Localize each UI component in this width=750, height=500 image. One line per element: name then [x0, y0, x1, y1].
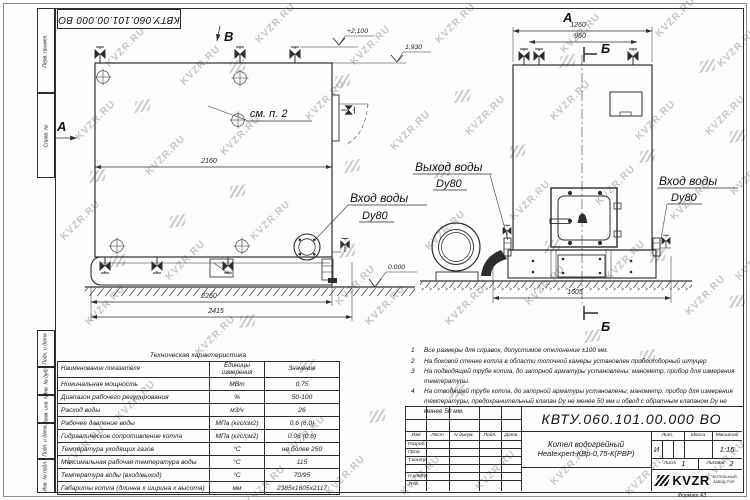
note-text: На подводящей трубе котла, до запорной а… [424, 367, 742, 386]
dim-1605: 1605 [567, 289, 583, 296]
tb-col-data: Дата [501, 431, 521, 440]
tb-line [406, 464, 521, 465]
table-row: Максимальная рабочая температура воды°С1… [58, 456, 340, 469]
position-mark-icon [234, 238, 251, 255]
elevation-zero: 0.000 [388, 264, 405, 271]
base-bolt [599, 272, 602, 275]
product-name-line1: Котел водогрейный [548, 440, 624, 449]
tb-logo-cell: KVZR КОТЕЛЬНЫЙ ЗАВОД РЭП [651, 469, 742, 491]
row-name: Расход воды [58, 404, 210, 417]
tb-line [662, 440, 663, 458]
tb-col-izm: Изм [406, 431, 426, 440]
valve-icon [534, 49, 545, 65]
base-bolt [532, 260, 535, 263]
view-a-marker: А [56, 119, 66, 134]
kvzr-logo-text: KVZR [672, 473, 709, 488]
tb-col-ndocum: N докум. [449, 431, 479, 440]
view-a-label: А [562, 10, 572, 25]
title-block: КВТУ.060.101.00.000 ВО Изм Лист N докум.… [405, 406, 744, 493]
tech-characteristics: Техническая характеристика Наименование … [57, 352, 339, 495]
base-hatch-diagonal [214, 263, 229, 274]
valve-icon [235, 47, 246, 63]
row-name: Диапазон рабочего регулирования [58, 391, 210, 404]
door-handle-pin [568, 219, 572, 223]
position-mark-icon [232, 70, 249, 87]
tb-line [521, 467, 651, 468]
sheets-label: Листов [707, 461, 725, 466]
position-mark-icon [95, 69, 112, 86]
col-name: Наименование показателя [58, 362, 210, 378]
table-row: Температура уходящих газов°Сне более 250 [58, 443, 340, 456]
inspection-panel [610, 92, 642, 116]
elev-tick [333, 38, 339, 45]
row-value: не более 250 [265, 443, 340, 456]
fan-ring [442, 233, 471, 262]
note-item: 3На подводящей трубе котла, до запорной … [411, 367, 742, 386]
tech-table-header-row: Наименование показателя Единицы измерени… [58, 362, 340, 378]
door-bolt [568, 191, 572, 195]
row-name: Номинальная мощность [58, 378, 210, 391]
note-item: 1Все размеры для справок, допустимое отк… [411, 346, 742, 356]
elev-tick [397, 55, 403, 62]
base-bolt [630, 271, 633, 274]
drawing-sheet: KVZR.RUKVZR.RUKVZR.RUKVZR.RUKVZR.RUKVZR.… [0, 0, 750, 500]
sheet-label: Лист [664, 461, 677, 466]
elev-tick [369, 279, 375, 287]
leader-line [661, 204, 667, 239]
kvzr-logo-icon [655, 475, 672, 486]
view-b-marker: В [224, 29, 233, 44]
drain-valve-icon [152, 257, 163, 273]
drain-valve-icon [100, 257, 111, 273]
row-unit: МПа (кгс/см2) [210, 417, 265, 430]
sheet-value: 1 [681, 459, 685, 468]
inlet-front-dn: Dy80 [671, 192, 698, 204]
row-unit: °С [210, 443, 265, 456]
section-b-top-label: Б [601, 41, 610, 56]
outlet-label: Выход воды [415, 160, 483, 174]
tb-col-list: Лист [426, 431, 449, 440]
base-bolt [562, 272, 565, 275]
tb-row-utv: Утв. [408, 482, 419, 487]
tb-mass-label: Масса [684, 431, 712, 440]
row-value: 0,75 [265, 378, 340, 391]
col-unit: Единицы измерения [210, 362, 265, 378]
sheets-value: 2 [729, 459, 733, 468]
tb-line [406, 448, 521, 449]
elev-tick [391, 55, 397, 62]
dim-2415: 2415 [207, 308, 224, 315]
position-mark-icon [230, 112, 247, 129]
inlet-side-label: Вход воды [350, 191, 408, 205]
product-name-line2: Heatexpert-КВр-0,75-К(РВР) [538, 449, 635, 458]
tb-line [673, 440, 674, 458]
water-inlet-flange-icon [294, 234, 320, 260]
row-unit: % [210, 391, 265, 404]
door-sight-glass [578, 214, 588, 224]
base-bolt [599, 258, 602, 261]
row-value: 70/95 [265, 469, 340, 482]
tb-row-tkontr: Т.контр [408, 458, 426, 463]
dim-2160: 2160 [200, 158, 217, 165]
base-bolt [532, 271, 535, 274]
inlet-side-dn: Dy80 [362, 210, 389, 222]
door-handle [550, 219, 570, 224]
tb-sheet-cell: Лист 1 [651, 458, 698, 469]
valve-icon [340, 238, 349, 252]
panel-latch [620, 112, 631, 116]
valve-icon [290, 47, 301, 63]
tech-table: Наименование показателя Единицы измерени… [57, 361, 340, 495]
side-view: см. п. 2 2160 [55, 26, 431, 321]
row-value: 50-100 [265, 391, 340, 404]
outlet-dn: Dy80 [436, 178, 463, 190]
row-value: 2385х1605х2117 [265, 482, 340, 495]
dim-2260: 2260 [200, 293, 217, 300]
front-view: 1260 960 А Б [413, 10, 738, 334]
pump-unit [322, 259, 333, 280]
inlet-front-label: Вход воды [659, 174, 717, 188]
table-row: Температура воды (вход/выход)°С70/95 [58, 469, 340, 482]
row-value: 115 [265, 456, 340, 469]
doc-number: КВТУ.060.101.00.000 ВО [541, 411, 721, 427]
row-unit: м3/ч [210, 404, 265, 417]
note-number: 2 [411, 357, 419, 367]
valve-icon [628, 49, 639, 65]
col-value: Значение [265, 362, 340, 378]
fan-stand [436, 272, 478, 281]
fan-housing [432, 223, 480, 271]
kvzr-logo-subtitle: КОТЕЛЬНЫЙ ЗАВОД РЭП [713, 475, 737, 484]
tb-product-name: Котел водогрейный Heatexpert-КВр-0,75-К(… [521, 431, 651, 467]
row-unit: МПа (кгс/см2) [210, 430, 265, 443]
dim-1260: 1260 [570, 22, 586, 29]
table-row: Диапазон рабочего регулирования%50-100 [58, 391, 340, 404]
row-unit: МВт [210, 378, 265, 391]
base-center-plate [558, 255, 605, 277]
tb-col-podp: Подп. [479, 431, 501, 440]
table-row: Габариты котла (длинна х ширина х высота… [58, 482, 340, 495]
dim-960: 960 [574, 33, 586, 40]
door-bolt [568, 241, 572, 245]
row-name: Гидравлическое сопротивление котла [58, 430, 210, 443]
base-bolt [630, 260, 633, 263]
note-text: На боковой стенке котла в области топочн… [424, 357, 707, 367]
tb-row-prov: Пров. [408, 450, 421, 455]
row-name: Габариты котла (длинна х ширина х высота… [58, 482, 210, 495]
elevation-1930: 1,930 [405, 44, 422, 51]
valve-icon [341, 105, 355, 114]
row-name: Максимальная рабочая температура воды [58, 456, 210, 469]
valve-icon [519, 49, 530, 65]
row-name: Температура воды (вход/выход) [58, 469, 210, 482]
row-unit: мм [210, 482, 265, 495]
note-item: 2На боковой стенке котла в области топоч… [411, 357, 742, 367]
leader-line [314, 205, 348, 241]
base-frame-side [91, 257, 332, 285]
note-number: 3 [411, 367, 419, 386]
tb-line [406, 480, 521, 481]
position-mark-icon [109, 238, 126, 255]
row-value: 0,06 (0,6) [265, 430, 340, 443]
elev-tick [375, 279, 381, 287]
table-row: Расход водым3/ч26 [58, 404, 340, 417]
tb-lit-value: И [651, 440, 662, 458]
tb-doc-number-cell: КВТУ.060.101.00.000 ВО [521, 407, 742, 431]
tb-row-razrab: Разраб. [408, 442, 426, 447]
ground-hatch [85, 288, 415, 296]
tb-row-nkontr: Н.контр [408, 474, 427, 479]
tb-sheets-cell: Листов 2 [698, 458, 742, 469]
table-row: Гидравлическое сопротивление котлаМПа (к… [58, 430, 340, 443]
valve-icon [95, 47, 106, 63]
fan-ring [439, 230, 474, 265]
tb-lit-label: Лит. [651, 431, 684, 440]
tb-line [406, 419, 521, 420]
pump-foot [328, 278, 337, 283]
tech-table-title: Техническая характеристика [57, 352, 339, 359]
row-value: 0,6 (6,0) [265, 417, 340, 430]
elevation-2100: +2,100 [347, 28, 368, 35]
section-b-bottom-label: Б [601, 319, 610, 334]
leader-line [490, 175, 508, 240]
door-bolt [598, 241, 602, 245]
elev-tick [339, 38, 345, 45]
fan-duct-elbow [481, 250, 507, 276]
door-bolt [598, 191, 602, 195]
view-b-arrow [217, 26, 220, 41]
table-row: Номинальная мощностьМВт0,75 [58, 378, 340, 391]
row-name: Температура уходящих газов [58, 443, 210, 456]
row-unit: °С [210, 469, 265, 482]
note-number: 1 [411, 346, 419, 356]
format-label: Формат А3 [640, 493, 744, 499]
logo-sub2: ЗАВОД РЭП [713, 480, 737, 485]
base-hatch-box [210, 259, 233, 277]
table-row: Рабочее давление водыМПа (кгс/см2)0,6 (6… [58, 417, 340, 430]
row-value: 26 [265, 404, 340, 417]
side-pipe [332, 95, 339, 141]
tb-scale-label: Масштаб [712, 431, 742, 440]
see-note-label: см. п. 2 [250, 108, 287, 120]
note-text: Все размеры для справок, допустимое откл… [424, 346, 608, 356]
valve-icon [662, 235, 671, 248]
base-bolt [562, 258, 565, 261]
leader-line [208, 106, 246, 120]
ground-hatch [420, 282, 692, 290]
row-name: Рабочее давление воды [58, 417, 210, 430]
row-unit: °С [210, 456, 265, 469]
tb-scale-value: 1:15 [712, 440, 742, 458]
